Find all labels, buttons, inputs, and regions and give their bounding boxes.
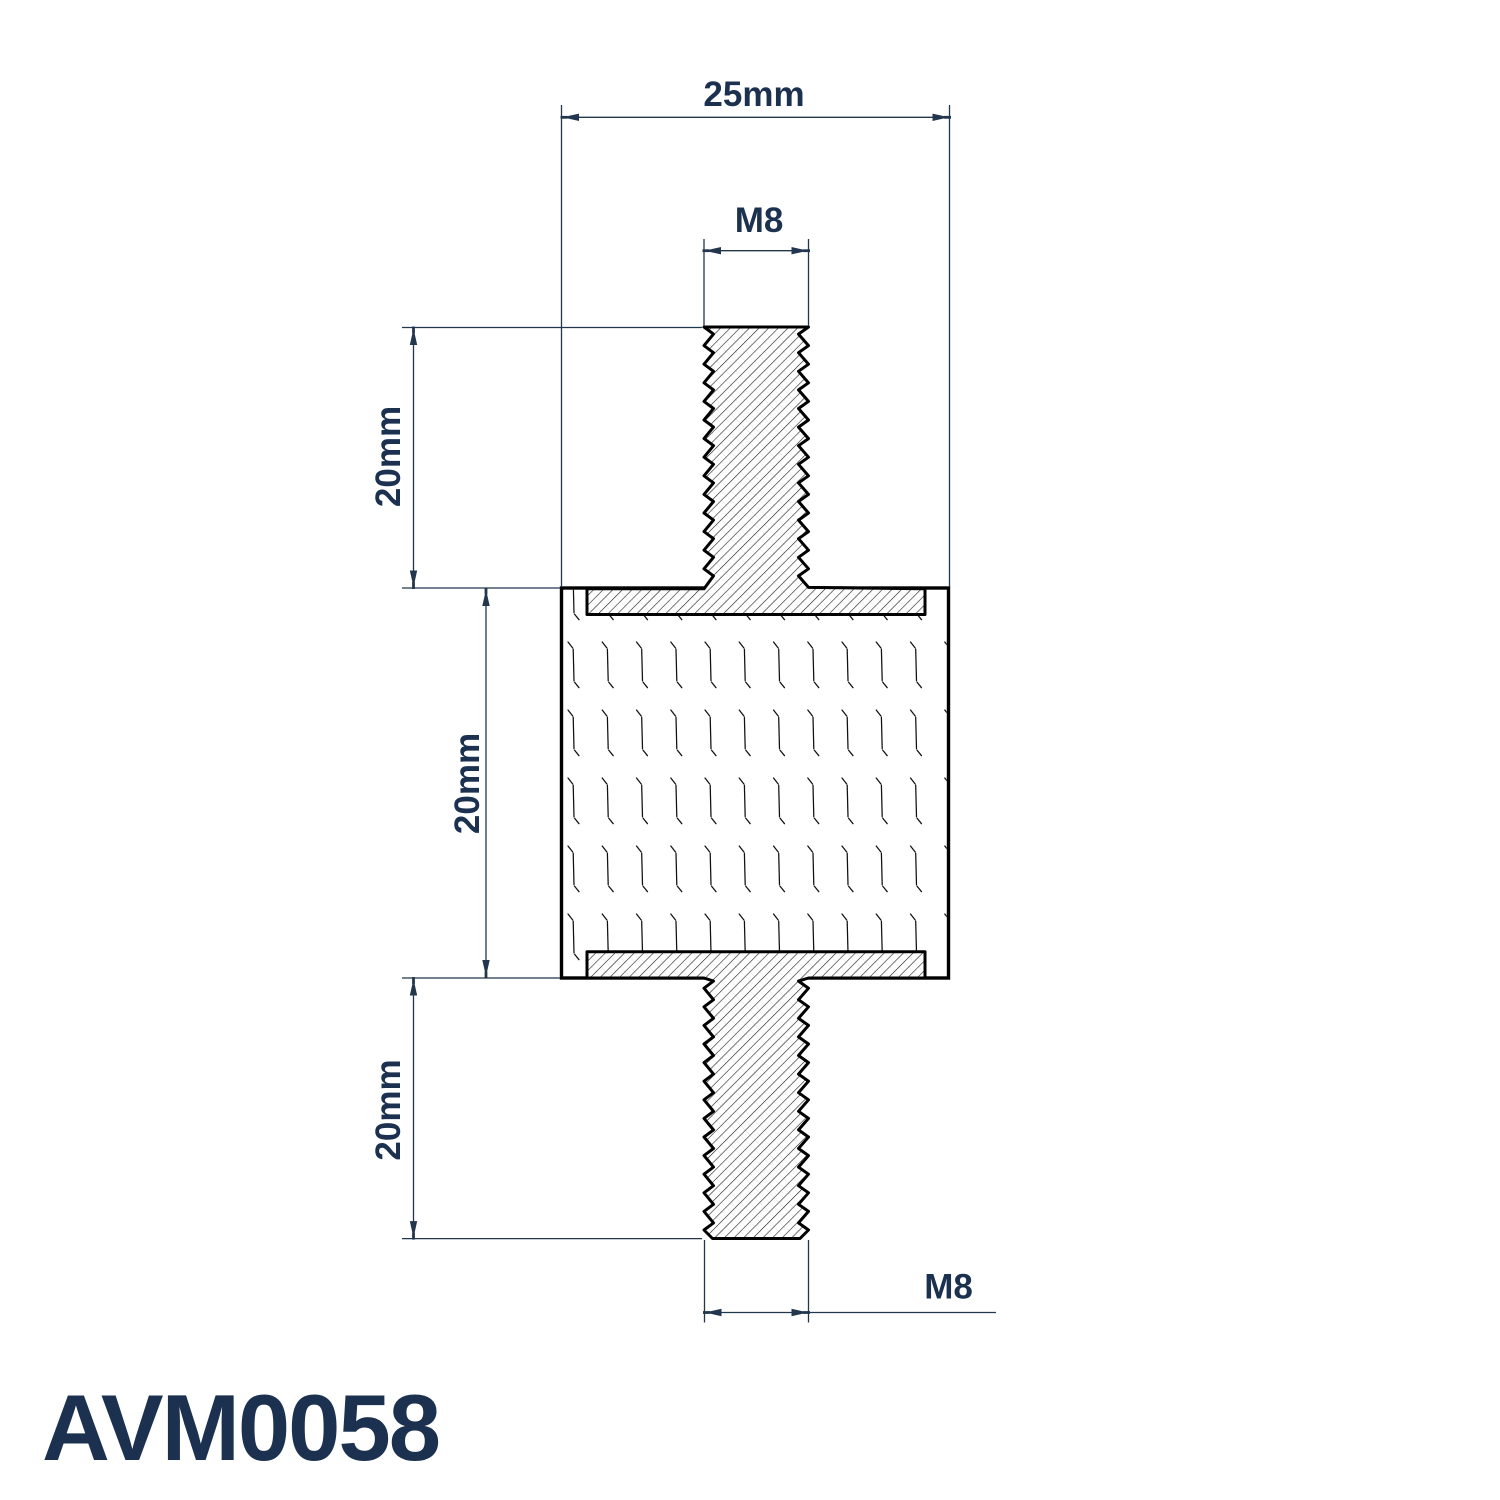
svg-text:20mm: 20mm xyxy=(369,1059,408,1160)
svg-text:20mm: 20mm xyxy=(448,733,487,834)
svg-text:AVM0058: AVM0058 xyxy=(42,1375,439,1480)
svg-text:20mm: 20mm xyxy=(369,406,408,507)
svg-text:M8: M8 xyxy=(924,1268,973,1307)
svg-text:25mm: 25mm xyxy=(703,75,804,114)
svg-text:M8: M8 xyxy=(735,201,784,240)
